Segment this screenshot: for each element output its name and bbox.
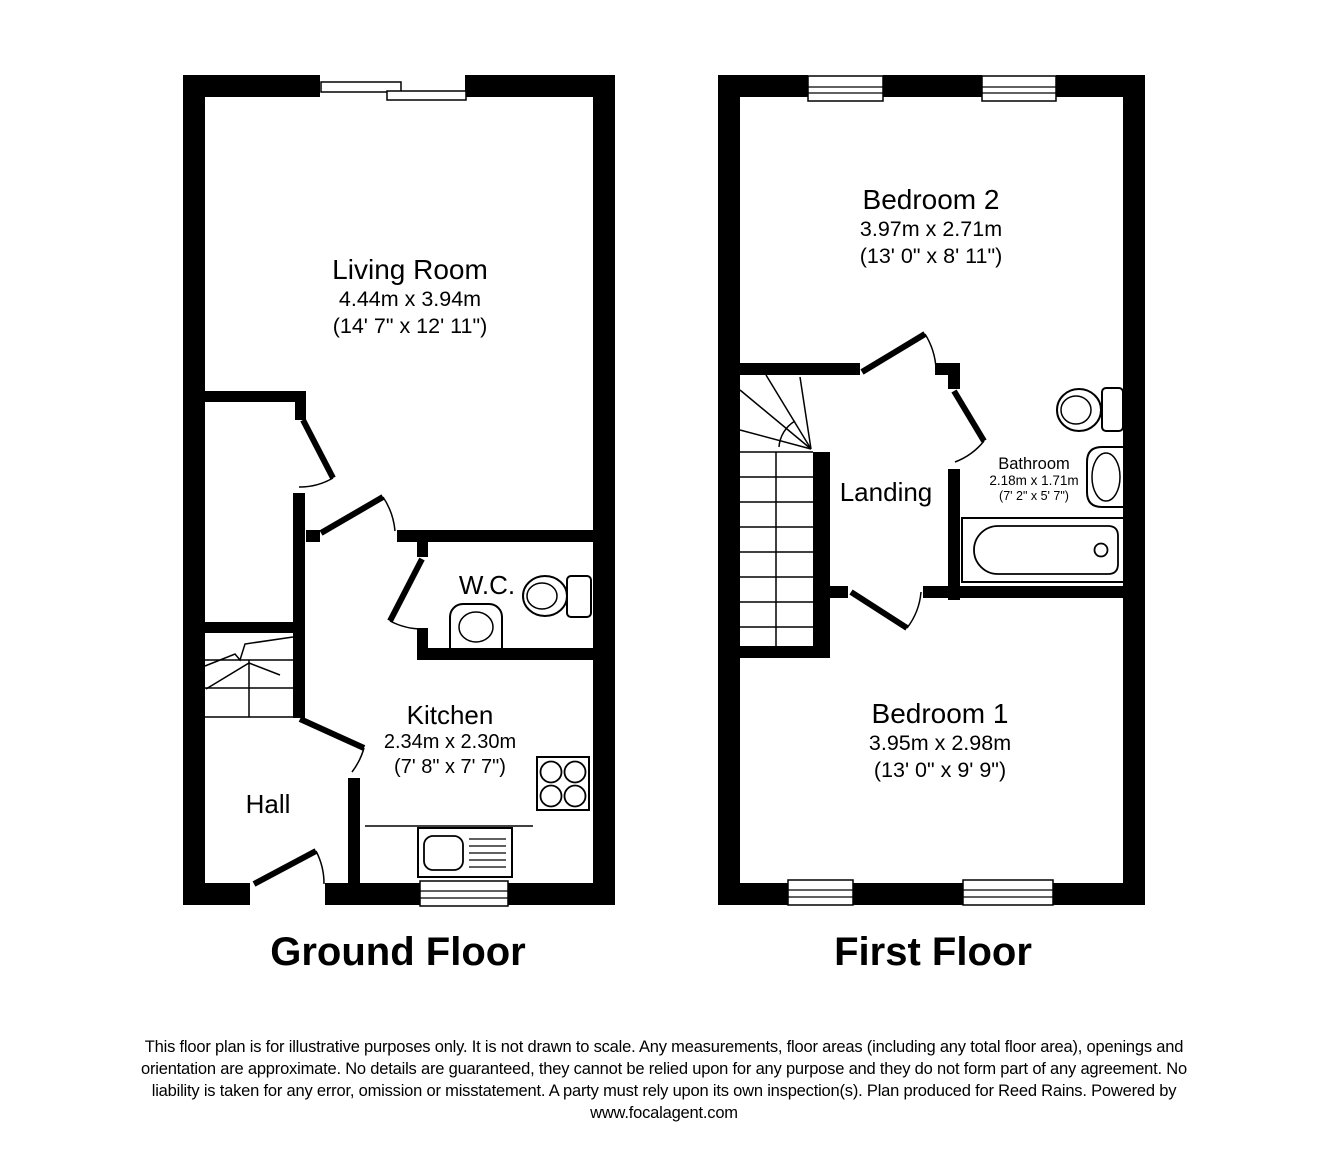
window-icon bbox=[788, 880, 853, 905]
window-icon bbox=[808, 76, 883, 101]
basin-icon bbox=[450, 604, 502, 649]
window-icon bbox=[982, 76, 1056, 101]
floorplan-graphics bbox=[0, 0, 1328, 1151]
bathroom-door-icon bbox=[954, 391, 984, 462]
wc-door-icon bbox=[390, 559, 424, 629]
bathtub-icon bbox=[962, 518, 1126, 582]
landing-label: Landing bbox=[840, 477, 933, 507]
window-icon bbox=[963, 880, 1053, 905]
room-name: Bedroom 2 bbox=[860, 184, 1003, 216]
room-dims-metric: 2.18m x 1.71m bbox=[989, 473, 1078, 489]
stairs-icon bbox=[205, 637, 293, 717]
room-name: Landing bbox=[840, 477, 933, 507]
basin-icon bbox=[1087, 447, 1123, 507]
living-kitchen-door-icon bbox=[321, 497, 395, 533]
hall-label: Hall bbox=[246, 789, 291, 819]
hob-icon bbox=[537, 757, 589, 810]
room-name: Hall bbox=[246, 789, 291, 819]
room-dims-imperial: (14' 7" x 12' 11") bbox=[332, 313, 488, 340]
disclaimer-line: www.focalagent.com bbox=[0, 1102, 1328, 1124]
ground-floor-plan bbox=[183, 75, 615, 906]
room-dims-metric: 3.95m x 2.98m bbox=[869, 730, 1011, 757]
stairs-icon bbox=[740, 375, 813, 646]
disclaimer-line: This floor plan is for illustrative purp… bbox=[0, 1036, 1328, 1058]
kitchen-label: Kitchen 2.34m x 2.30m (7' 8" x 7' 7") bbox=[384, 700, 516, 780]
hall-kitchen-door-icon bbox=[300, 719, 364, 772]
front-door-icon bbox=[254, 851, 324, 884]
room-dims-imperial: (7' 2" x 5' 7") bbox=[989, 489, 1078, 504]
patio-door-icon bbox=[321, 82, 466, 100]
kitchen-window-icon bbox=[420, 881, 508, 906]
room-name: Bathroom bbox=[989, 455, 1078, 473]
bathroom-label: Bathroom 2.18m x 1.71m (7' 2" x 5' 7") bbox=[989, 455, 1078, 504]
ground-floor-walls bbox=[183, 75, 615, 905]
room-dims-metric: 2.34m x 2.30m bbox=[384, 730, 516, 755]
toilet-icon bbox=[523, 576, 591, 617]
living-room-door-icon bbox=[299, 420, 333, 487]
room-name: Bedroom 1 bbox=[869, 698, 1011, 730]
living-room-label: Living Room 4.44m x 3.94m (14' 7" x 12' … bbox=[332, 254, 488, 340]
room-name: Living Room bbox=[332, 254, 488, 286]
room-dims-imperial: (7' 8" x 7' 7") bbox=[384, 755, 516, 780]
bedroom1-label: Bedroom 1 3.95m x 2.98m (13' 0" x 9' 9") bbox=[869, 698, 1011, 784]
room-dims-imperial: (13' 0" x 9' 9") bbox=[869, 757, 1011, 784]
ground-floor-title: Ground Floor bbox=[270, 930, 526, 974]
first-floor-title: First Floor bbox=[834, 930, 1032, 974]
wc-label: W.C. bbox=[459, 570, 515, 600]
disclaimer-text: This floor plan is for illustrative purp… bbox=[0, 1036, 1328, 1124]
kitchen-sink-icon bbox=[418, 828, 512, 877]
bedroom1-door-icon bbox=[851, 592, 921, 628]
room-name: W.C. bbox=[459, 570, 515, 600]
room-name: Kitchen bbox=[384, 700, 516, 730]
room-dims-metric: 4.44m x 3.94m bbox=[332, 286, 488, 313]
toilet-icon bbox=[1057, 388, 1123, 431]
room-dims-metric: 3.97m x 2.71m bbox=[860, 216, 1003, 243]
disclaimer-line: orientation are approximate. No details … bbox=[0, 1058, 1328, 1080]
floorplan-image: Living Room 4.44m x 3.94m (14' 7" x 12' … bbox=[0, 0, 1328, 1151]
disclaimer-line: liability is taken for any error, omissi… bbox=[0, 1080, 1328, 1102]
bedroom2-door-icon bbox=[862, 334, 936, 372]
room-dims-imperial: (13' 0" x 8' 11") bbox=[860, 243, 1003, 270]
bedroom2-label: Bedroom 2 3.97m x 2.71m (13' 0" x 8' 11"… bbox=[860, 184, 1003, 270]
